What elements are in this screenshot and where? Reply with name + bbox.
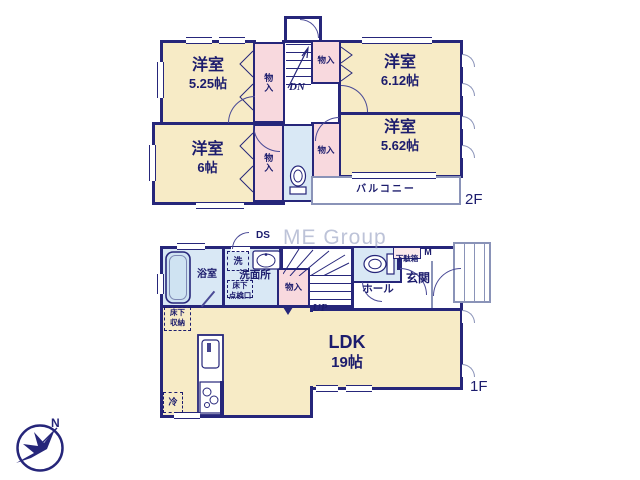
toilet-icon-2f — [288, 164, 308, 196]
room-525-name: 洋室 — [165, 56, 251, 76]
closet-2f-d-label: 物入 — [312, 145, 340, 156]
shoe-cabinet-box: 下駄箱 — [393, 247, 421, 259]
casement-window-icon — [462, 364, 475, 377]
stairs-up-label: UP — [306, 302, 334, 316]
casement-window-icon — [462, 145, 475, 158]
window — [174, 412, 200, 419]
watermark: ME Group — [283, 226, 387, 250]
window — [157, 62, 164, 98]
window — [186, 37, 212, 44]
compass-north-label: N — [51, 416, 60, 430]
balcony-door-window — [352, 172, 436, 179]
window — [177, 243, 205, 250]
floor-2f-label: 2F — [465, 191, 483, 208]
winder-stairs-icon — [283, 249, 351, 276]
floor-plan-canvas: バルコニー 物入 物入 物入 物入 洋室 5.25帖 洋室 6.12帖 洋室 6… — [0, 0, 640, 480]
door-arc — [232, 232, 249, 249]
washer-label: 洗 — [228, 256, 248, 268]
window — [149, 145, 156, 181]
underfloor-access-line1: 床下 — [228, 281, 252, 291]
washer-space: 洗 — [227, 251, 249, 271]
room-6-name: 洋室 — [160, 140, 255, 160]
casement-window-icon — [462, 310, 475, 323]
bathtub-icon — [165, 251, 191, 304]
closet-2f-a-label: 物入 — [262, 62, 273, 104]
window — [219, 37, 245, 44]
duct-space-label: DS — [252, 230, 274, 243]
ldk-size: 19帖 — [295, 354, 399, 373]
room-612-label: 洋室 6.12帖 — [350, 53, 450, 89]
room-562-label: 洋室 5.62帖 — [350, 118, 450, 154]
casement-window-icon — [462, 83, 475, 96]
casement-window-icon — [462, 116, 475, 129]
porch-step-line — [474, 244, 475, 301]
ldk-label: LDK 19帖 — [295, 331, 399, 372]
fridge-label: 冷 — [164, 397, 182, 409]
washbasin-icon — [252, 250, 281, 270]
room-525-size: 5.25帖 — [165, 76, 251, 92]
underfloor-storage-line1: 床下 — [165, 308, 190, 318]
kitchen-counter-icon — [197, 334, 224, 416]
window — [157, 274, 164, 294]
window — [316, 385, 338, 392]
closet-2f-c-label: 物入 — [262, 142, 273, 184]
window — [362, 37, 432, 44]
casement-window-icon — [462, 54, 475, 67]
toilet-icon-1f — [362, 252, 396, 276]
balcony-label: バルコニー — [336, 184, 436, 197]
floor-1f-label: 1F — [470, 378, 488, 395]
underfloor-access-line2: 点検口 — [228, 291, 252, 301]
room-525-label: 洋室 5.25帖 — [165, 56, 251, 92]
entrance-label: 玄関 — [400, 271, 436, 286]
ldk-name: LDK — [295, 331, 399, 354]
room-612-size: 6.12帖 — [350, 73, 450, 89]
closet-1f-label: 物入 — [278, 282, 309, 293]
shoe-cabinet-label: 下駄箱 — [396, 254, 419, 263]
underfloor-storage-line2: 収納 — [165, 318, 190, 328]
room-562-name: 洋室 — [350, 118, 450, 138]
shoe-cabinet-mark: M — [423, 247, 433, 258]
room-6-label: 洋室 6帖 — [160, 140, 255, 176]
hall-label: ホール — [358, 283, 398, 296]
window — [346, 385, 372, 392]
room-612-name: 洋室 — [350, 53, 450, 73]
room-562-size: 5.62帖 — [350, 138, 450, 154]
porch-step-line — [484, 244, 485, 301]
underfloor-access: 床下 点検口 — [227, 280, 253, 298]
stairs-up-icon — [309, 275, 352, 305]
bathroom-label: 浴室 — [190, 269, 224, 282]
stairs-down-label: DN — [283, 81, 311, 95]
compass-icon: N — [10, 415, 72, 475]
window — [196, 202, 244, 209]
room-6-size: 6帖 — [160, 160, 255, 176]
stair-start-marker — [283, 307, 293, 315]
fridge-space: 冷 — [163, 392, 183, 413]
porch-step-line — [464, 244, 465, 301]
underfloor-storage: 床下 収納 — [164, 307, 191, 331]
closet-2f-b-label: 物入 — [312, 55, 340, 66]
